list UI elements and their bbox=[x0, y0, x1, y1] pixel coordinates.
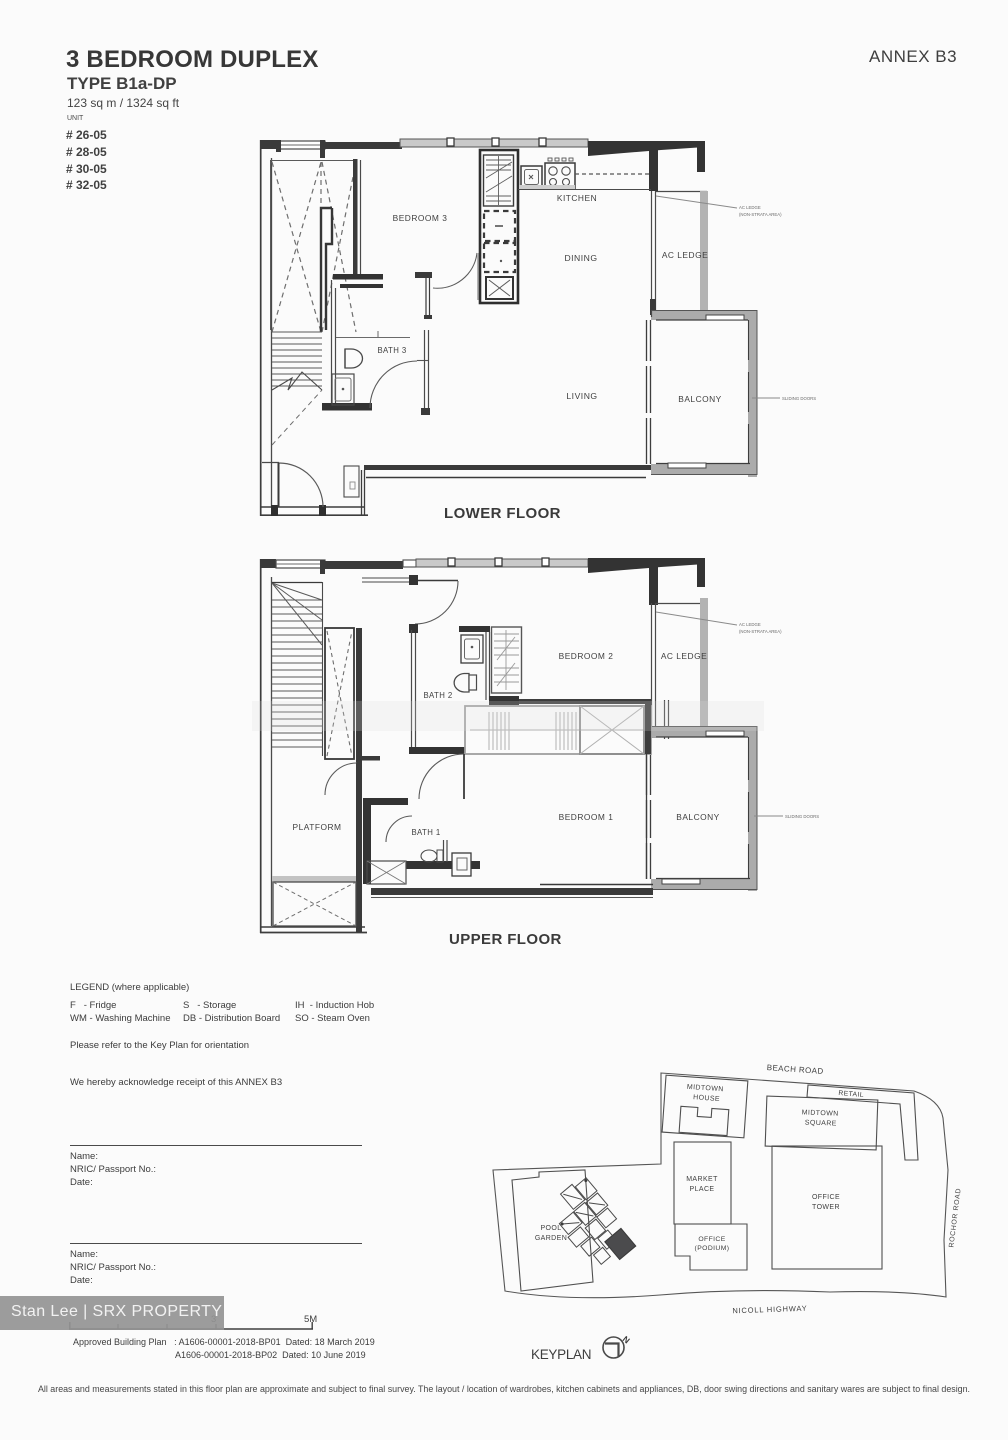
svg-text:MIDTOWN: MIDTOWN bbox=[687, 1084, 724, 1094]
svg-text:AC LEDGE: AC LEDGE bbox=[739, 622, 761, 627]
svg-text:BATH 3: BATH 3 bbox=[377, 346, 406, 355]
svg-text:ROCHOR ROAD: ROCHOR ROAD bbox=[948, 1188, 962, 1248]
svg-text:MARKET: MARKET bbox=[686, 1176, 718, 1183]
svg-text:BALCONY: BALCONY bbox=[678, 394, 722, 404]
svg-text:BATH 2: BATH 2 bbox=[423, 691, 452, 700]
svg-text:NICOLL HIGHWAY: NICOLL HIGHWAY bbox=[732, 1304, 807, 1316]
svg-text:RETAIL: RETAIL bbox=[838, 1090, 864, 1099]
svg-text:MIDTOWN: MIDTOWN bbox=[802, 1109, 839, 1117]
svg-text:TOWER: TOWER bbox=[812, 1204, 840, 1211]
svg-text:N: N bbox=[621, 1334, 632, 1346]
svg-text:(NON-STRATA AREA): (NON-STRATA AREA) bbox=[739, 629, 782, 634]
svg-text:BEACH ROAD: BEACH ROAD bbox=[766, 1063, 823, 1076]
svg-text:LIVING: LIVING bbox=[566, 391, 597, 401]
svg-text:BEDROOM 2: BEDROOM 2 bbox=[559, 651, 614, 661]
svg-text:(PODIUM): (PODIUM) bbox=[695, 1245, 730, 1252]
svg-text:BEDROOM 1: BEDROOM 1 bbox=[559, 812, 614, 822]
svg-text:PLACE: PLACE bbox=[690, 1186, 715, 1193]
svg-text:OFFICE: OFFICE bbox=[812, 1194, 840, 1201]
svg-text:SLIDING DOORS: SLIDING DOORS bbox=[782, 396, 816, 401]
svg-text:AC LEDGE: AC LEDGE bbox=[662, 250, 708, 260]
svg-text:POOL: POOL bbox=[540, 1225, 561, 1232]
svg-text:BATH 1: BATH 1 bbox=[411, 828, 440, 837]
svg-text:DINING: DINING bbox=[564, 253, 597, 263]
svg-text:5M: 5M bbox=[304, 1314, 317, 1325]
svg-text:HOUSE: HOUSE bbox=[693, 1094, 720, 1103]
svg-text:GARDEN: GARDEN bbox=[535, 1235, 567, 1242]
svg-text:PLATFORM: PLATFORM bbox=[293, 822, 342, 832]
svg-text:KITCHEN: KITCHEN bbox=[557, 193, 597, 203]
svg-text:AC LEDGE: AC LEDGE bbox=[739, 205, 761, 210]
svg-text:OFFICE: OFFICE bbox=[698, 1236, 725, 1243]
svg-text:AC LEDGE: AC LEDGE bbox=[661, 651, 707, 661]
svg-text:SQUARE: SQUARE bbox=[805, 1119, 837, 1127]
svg-text:(NON-STRATA AREA): (NON-STRATA AREA) bbox=[739, 212, 782, 217]
svg-text:SLIDING DOORS: SLIDING DOORS bbox=[785, 814, 819, 819]
svg-text:BALCONY: BALCONY bbox=[676, 812, 720, 822]
svg-text:BEDROOM 3: BEDROOM 3 bbox=[393, 213, 448, 223]
